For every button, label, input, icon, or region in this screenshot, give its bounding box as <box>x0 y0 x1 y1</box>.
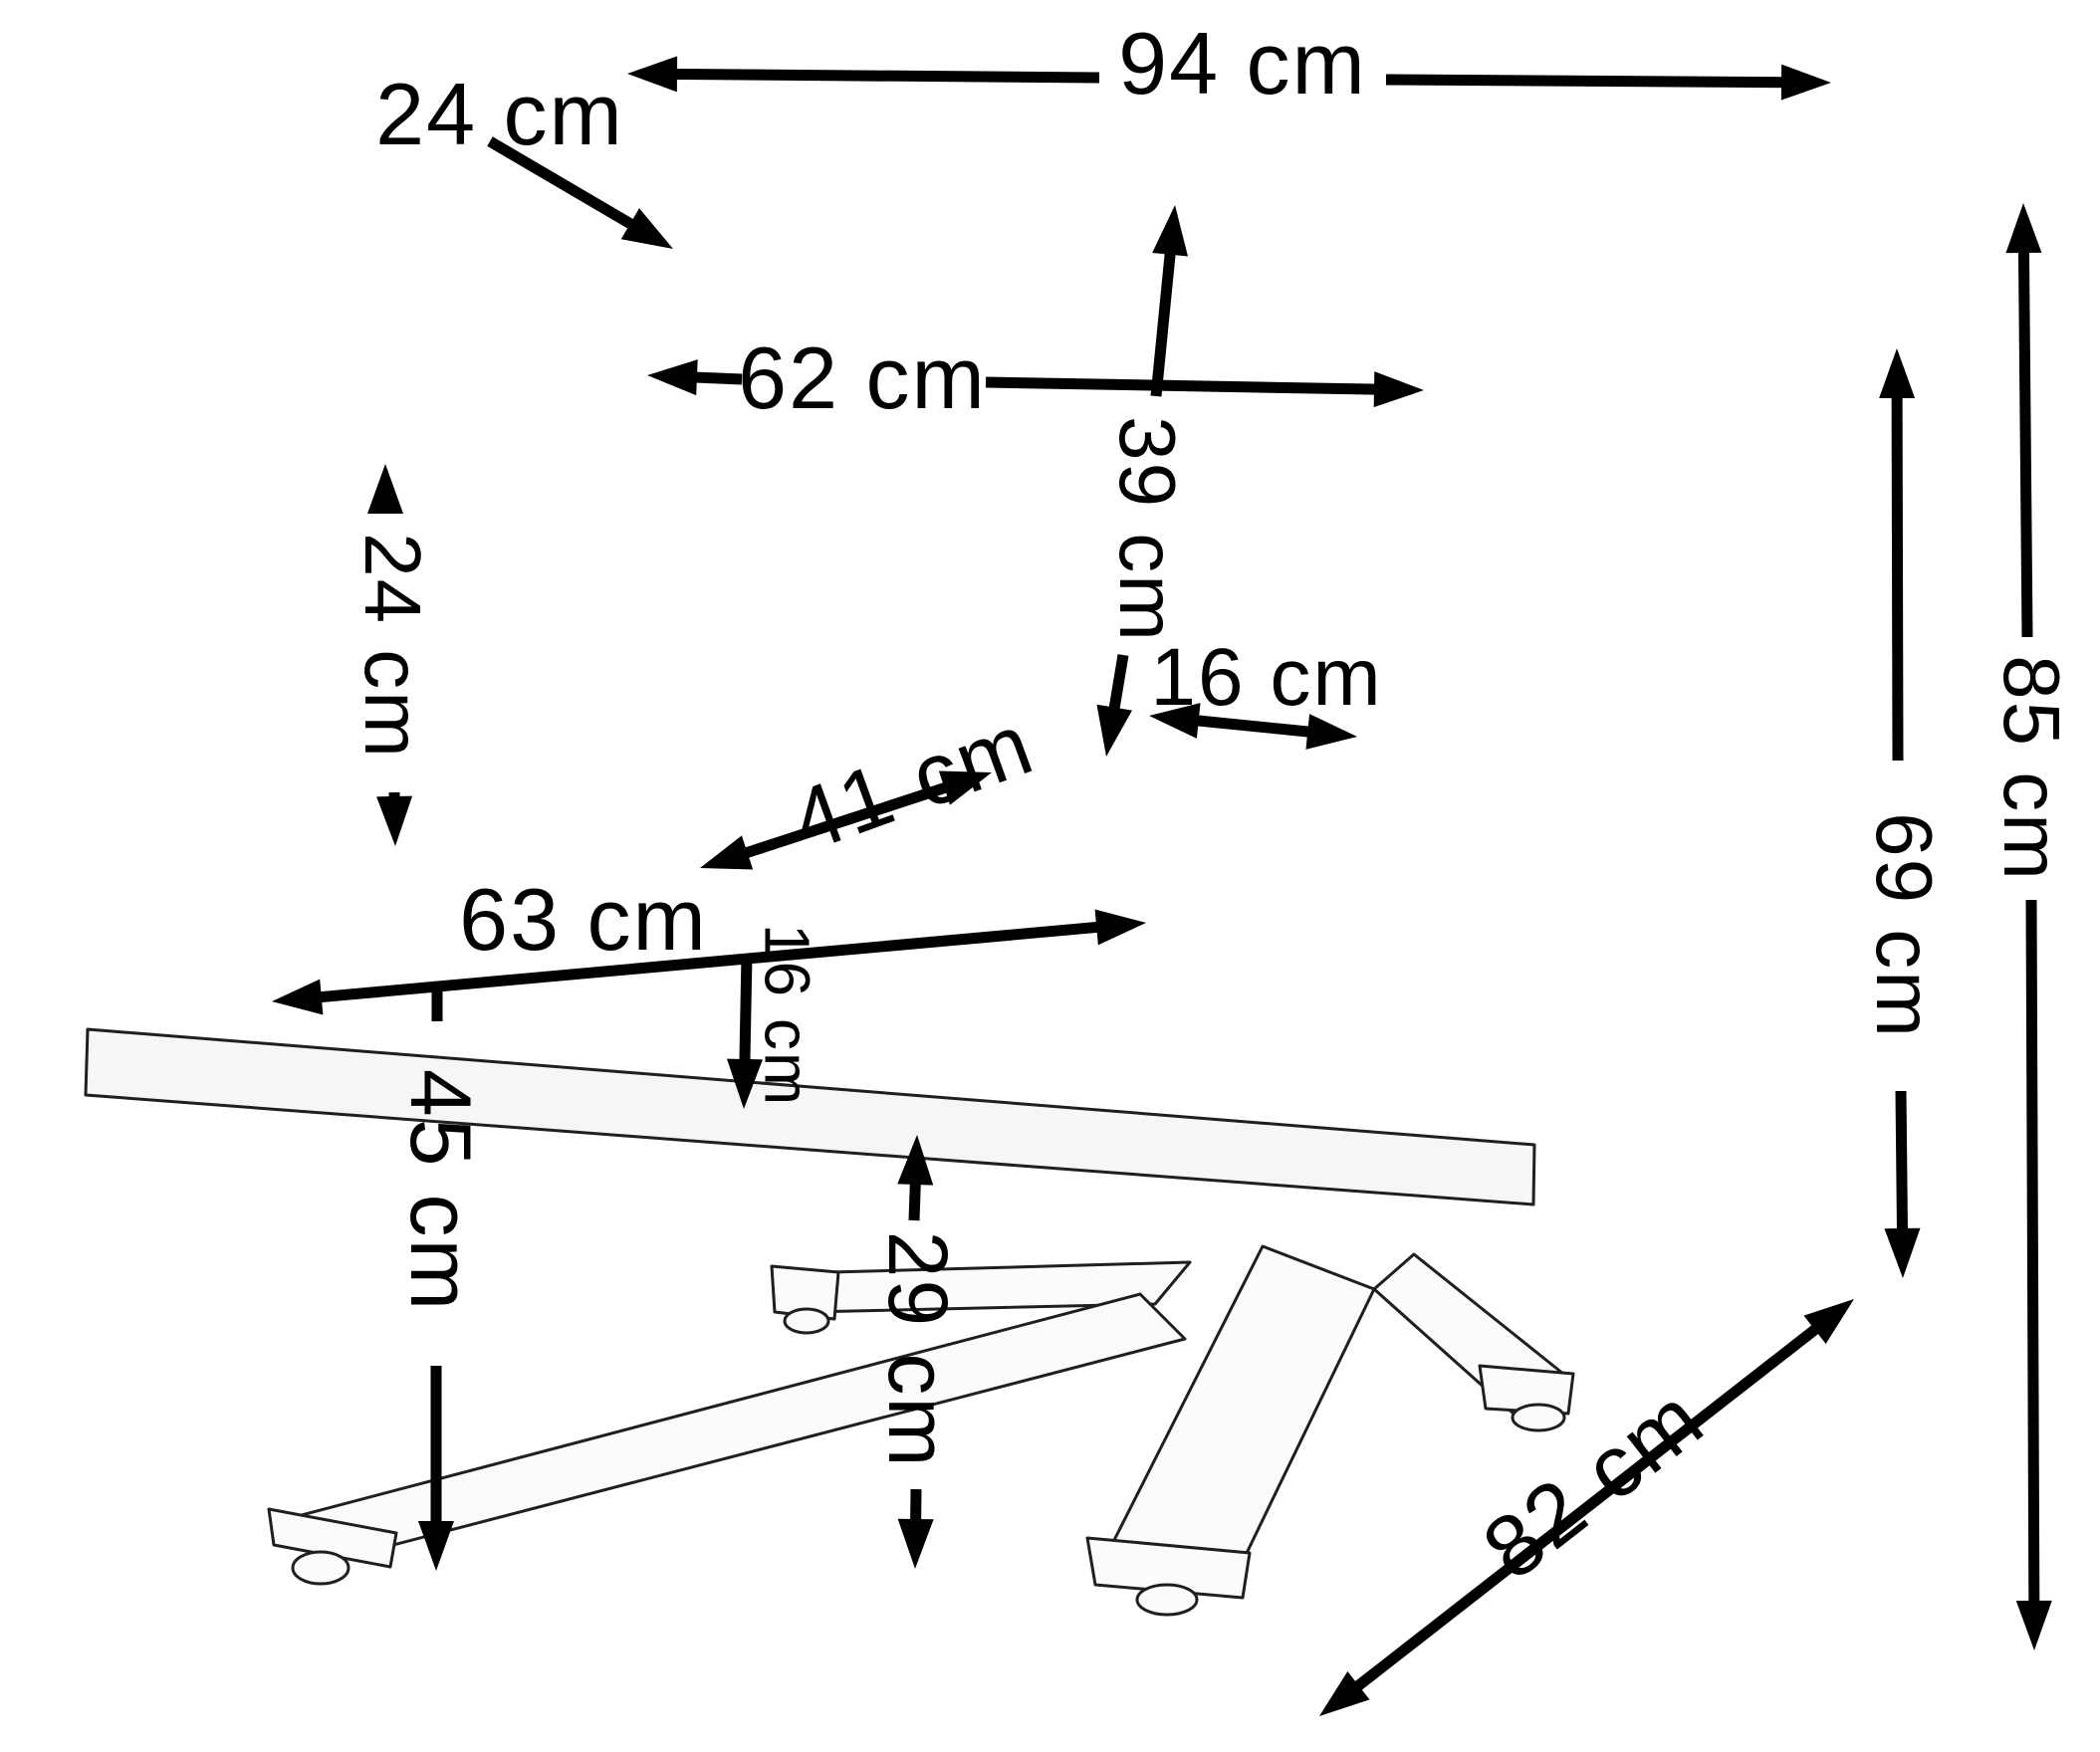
dim-arrowhead-overall-height-top <box>2005 203 2041 253</box>
dim-label-back-cushion-thickness: 24 cm <box>375 73 624 156</box>
dim-label-overall-width: 94 cm <box>1118 22 1367 106</box>
dim-line-overall-width-left <box>667 74 1099 78</box>
armchair-illustration <box>0 0 2100 1752</box>
dim-arrowhead-ground-clearance-bottom <box>898 1519 934 1569</box>
dim-line-height-to-armrest-bottom <box>1901 1091 1903 1238</box>
dim-arrowhead-height-to-armrest-bottom <box>1884 1228 1920 1278</box>
dim-line-height-to-armrest-top <box>1897 388 1898 761</box>
dim-arrowhead-overall-height-bottom <box>2016 1601 2052 1650</box>
dim-label-back-cushion-height: 39 cm <box>1109 416 1185 643</box>
dim-line-overall-width-right <box>1386 80 1791 83</box>
dim-label-seat-cushion-thickness: 16 cm <box>757 924 817 1107</box>
dim-label-ground-clearance: 29 cm <box>877 1231 957 1469</box>
dim-line-overall-height-bottom <box>2031 900 2034 1611</box>
dim-label-armrest-width: 16 cm <box>1150 639 1382 717</box>
leg-front-left <box>279 1294 1185 1558</box>
dim-arrowhead-seat-height-bottom <box>418 1521 454 1571</box>
diagram-canvas: 94 cm 24 cm 62 cm 39 cm 24 cm 16 cm 41 c… <box>0 0 2100 1752</box>
dim-label-seat-height: 45 cm <box>398 1069 480 1312</box>
dim-line-overall-height-top <box>2023 243 2027 637</box>
right-armrest <box>1185 319 1536 1151</box>
dim-label-back-cushion-width: 62 cm <box>738 336 987 420</box>
dim-arrowhead-overall-width-right <box>1781 65 1831 101</box>
dim-label-height-to-armrest: 69 cm <box>1866 812 1942 1039</box>
dim-line-back-cushion-width-right <box>986 382 1384 389</box>
dim-arrowhead-height-to-armrest-top <box>1879 348 1915 398</box>
dim-label-armrest-height: 24 cm <box>354 533 430 760</box>
dim-label-seat-width: 63 cm <box>459 878 708 962</box>
dim-line-seat-cushion-thickness <box>745 956 747 1069</box>
dim-label-overall-height: 85 cm <box>1993 655 2069 882</box>
dim-arrowhead-back-cushion-width-left <box>647 359 698 395</box>
dim-arrowhead-overall-width-left <box>627 56 677 92</box>
